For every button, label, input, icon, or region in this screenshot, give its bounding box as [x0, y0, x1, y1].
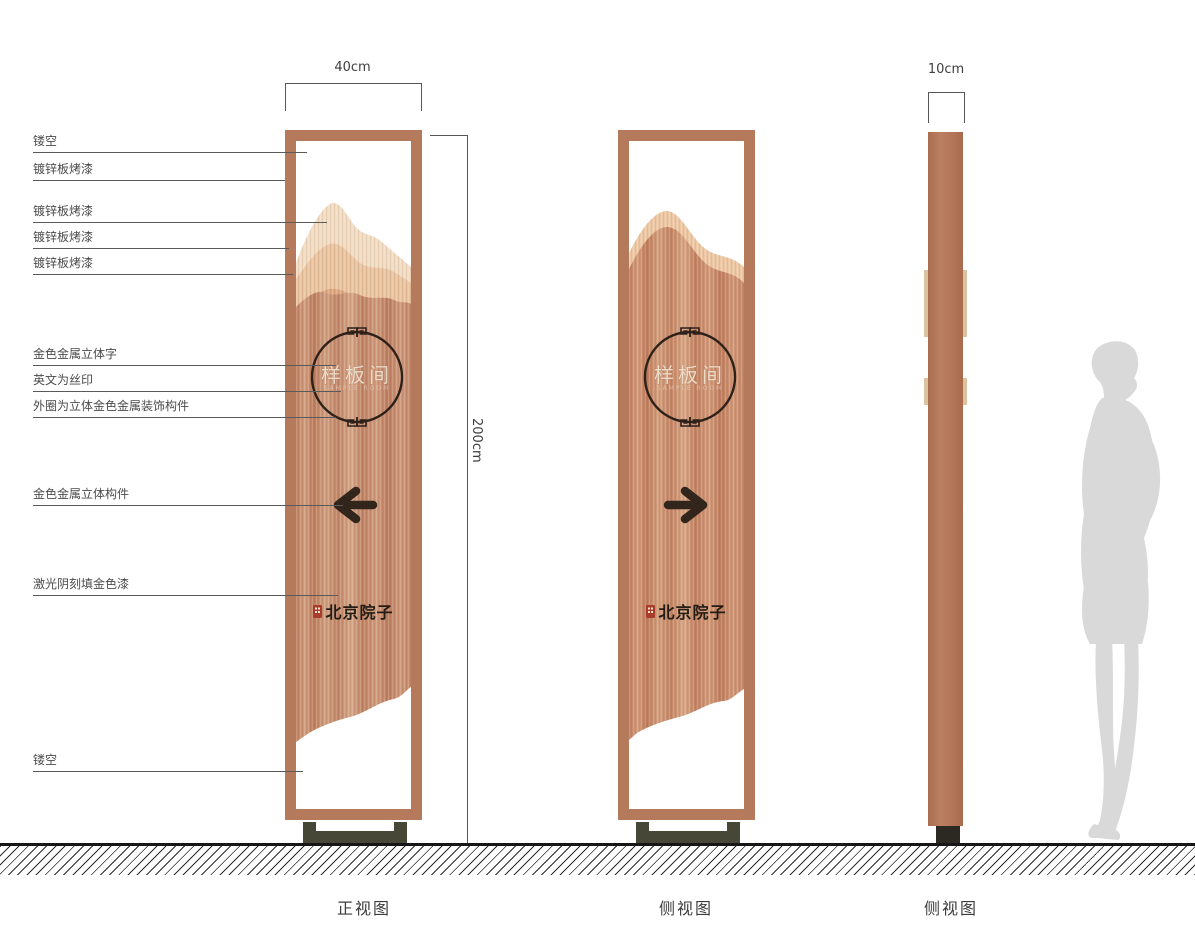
room-name-english: SAMPLE ROOM [640, 385, 740, 392]
circle-ornament: 样板间 SAMPLE ROOM [640, 327, 740, 427]
annotation-label: 镂空 [33, 753, 57, 767]
annotation-galvanized-3: 镀锌板烤漆 [33, 229, 289, 249]
side-sign-artwork: 样板间 SAMPLE ROOM [629, 141, 744, 809]
base-bar [636, 831, 740, 843]
annotation-label: 镀锌板烤漆 [33, 162, 93, 176]
brand-name-text: 北京院子 [658, 599, 726, 623]
annotation-label: 镂空 [33, 134, 57, 148]
annotation-label: 金色金属立体字 [33, 347, 117, 361]
annotation-gold-component: 金色金属立体构件 [33, 486, 343, 506]
room-name-text: 样板间 [640, 359, 740, 388]
annotation-gold-letters: 金色金属立体字 [33, 346, 336, 366]
side-sign-base [636, 822, 740, 843]
side-view-sign: 样板间 SAMPLE ROOM [618, 130, 755, 820]
annotation-label: 镀锌板烤漆 [33, 230, 93, 244]
annotation-hollow-bottom: 镂空 [33, 752, 303, 772]
front-view-sign: 样板间 SAMPLE ROOM [285, 130, 422, 820]
annotation-silkscreen: 英文为丝印 [33, 372, 341, 392]
copper-panel-graphic [629, 141, 744, 809]
dim-height-tick [430, 135, 467, 136]
brand-logo: 北京院子 [629, 599, 744, 623]
front-sign-base [303, 822, 407, 843]
front-sign-artwork: 样板间 SAMPLE ROOM [296, 141, 411, 809]
dim-side-width: 10cm [910, 62, 982, 77]
caption-side-view-1: 侧视图 [659, 895, 713, 919]
design-sheet: 镂空 镀锌板烤漆 镀锌板烤漆 镀锌板烤漆 镀锌板烤漆 金色金属立体字 英文为丝印… [0, 0, 1195, 927]
base-bar [303, 831, 407, 843]
annotation-ring-component: 外圈为立体金色金属装饰构件 [33, 398, 336, 418]
annotation-label: 激光阴刻填金色漆 [33, 577, 129, 591]
brand-logo: 北京院子 [296, 599, 411, 623]
human-silhouette [1038, 338, 1180, 841]
annotation-galvanized-2: 镀锌板烤漆 [33, 203, 327, 223]
dim-front-width: 40cm [285, 60, 420, 75]
annotation-label: 镀锌板烤漆 [33, 256, 93, 270]
seal-stamp-icon [313, 605, 322, 618]
dim-height-line [467, 135, 468, 843]
annotation-label: 英文为丝印 [33, 373, 93, 387]
dim-side-width-bracket [928, 92, 965, 123]
side-profile-sign [928, 132, 963, 843]
dim-total-height: 200cm [469, 418, 484, 463]
side-profile-slab [928, 132, 963, 826]
annotation-label: 镀锌板烤漆 [33, 204, 93, 218]
caption-side-view-2: 侧视图 [924, 895, 978, 919]
annotation-hollow-top: 镂空 [33, 133, 307, 153]
annotation-label: 金色金属立体构件 [33, 487, 129, 501]
ground-hatch [0, 843, 1195, 875]
annotation-galvanized-4: 镀锌板烤漆 [33, 255, 293, 275]
annotation-laser-engrave: 激光阴刻填金色漆 [33, 576, 338, 596]
annotation-label: 外圈为立体金色金属装饰构件 [33, 399, 189, 413]
side-profile-foot [936, 826, 960, 843]
seal-stamp-icon [646, 605, 655, 618]
annotation-galvanized-1: 镀锌板烤漆 [33, 161, 285, 181]
brand-name-text: 北京院子 [325, 599, 393, 623]
dim-front-width-bracket [285, 83, 422, 111]
copper-panel-graphic [296, 141, 411, 809]
caption-front-view: 正视图 [337, 895, 391, 919]
arrow-right-icon [661, 485, 713, 525]
